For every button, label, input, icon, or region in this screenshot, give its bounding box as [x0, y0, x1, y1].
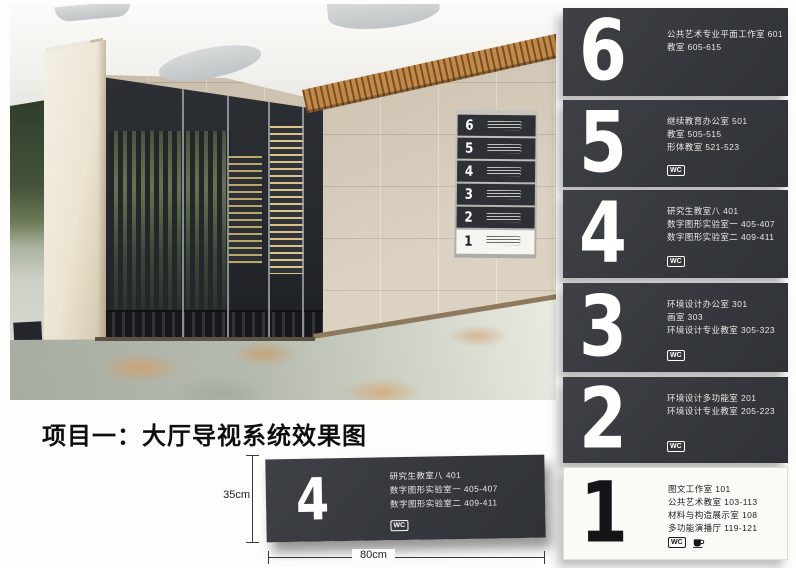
height-dimension-label: 35cm [212, 489, 250, 501]
room-line: 数字图形实验室二 409-411 [390, 495, 498, 511]
room-line: 教室 505-515 [667, 128, 747, 141]
directory-panel-4: 4 [457, 161, 535, 183]
floor-number: 4 [295, 470, 329, 529]
floor-number: 4 [579, 190, 627, 274]
floor-number: 5 [579, 100, 627, 184]
room-line: 研究生教室八 401 [667, 205, 775, 218]
floor-number: 4 [465, 163, 473, 179]
room-list: 研究生教室八 401 数字图形实验室一 405-407 数字图形实验室二 409… [667, 205, 775, 244]
lobby-photo: 6 5 4 3 2 1 [10, 4, 556, 400]
room-line: 继续教育办公室 501 [667, 115, 747, 128]
gate-frame-strip [302, 76, 304, 342]
detail-sign-4: 4 研究生教室八 401 数字图形实验室一 405-407 数字图形实验室二 4… [265, 455, 545, 543]
room-line: 图文工作室 101 [668, 483, 758, 496]
floor-sign-1: 1 图文工作室 101 公共艺术教室 103-113 材料与构造展示室 108 … [563, 467, 788, 560]
gate-frame-strip [268, 76, 270, 342]
room-list: 环境设计多功能室 201 环境设计专业教室 205-223 [667, 392, 775, 418]
floor-number: 3 [579, 284, 627, 368]
room-line: 形体教室 521-523 [667, 141, 747, 154]
mini-sign-lines [488, 121, 522, 130]
gate-frame-strip [182, 76, 184, 342]
room-line: 公共艺术教室 103-113 [668, 496, 758, 509]
page-title: 项目一：大厅导视系统效果图 [42, 416, 367, 451]
floor-number: 1 [580, 470, 628, 554]
room-line: 多功能演播厅 119-121 [668, 522, 758, 535]
wc-icon: WC [667, 165, 685, 176]
directory-panel-2: 2 [457, 207, 535, 229]
coffee-cup-icon [692, 537, 705, 548]
floor-sign-5: 5 继续教育办公室 501 教室 505-515 形体教室 521-523 WC [563, 100, 788, 187]
floor-sign-3: 3 环境设计办公室 301 画室 303 环境设计专业教室 305-323 WC [563, 283, 788, 372]
mini-sign-lines [486, 236, 520, 245]
mini-sign-lines [487, 190, 521, 199]
floor-number: 6 [579, 8, 627, 92]
floor-sign-4: 4 研究生教室八 401 数字图形实验室一 405-407 数字图形实验室二 4… [563, 190, 788, 278]
height-dimension-line [252, 455, 253, 543]
directory-panel-1: 1 [456, 230, 534, 255]
room-line: 材料与构造展示室 108 [668, 509, 758, 522]
room-list: 公共艺术专业平面工作室 601 教室 605-615 [667, 28, 783, 54]
mini-sign-lines [487, 213, 521, 222]
wc-icon: WC [390, 520, 408, 531]
mini-sign-lines [487, 167, 521, 176]
floor-number: 3 [465, 186, 473, 202]
width-dimension-line [268, 557, 545, 558]
directory-panel-6: 6 [458, 115, 536, 137]
gate-louver-window [270, 126, 304, 274]
room-line: 环境设计办公室 301 [667, 298, 775, 311]
room-list: 环境设计办公室 301 画室 303 环境设计专业教室 305-323 [667, 298, 775, 337]
gate-balusters [109, 131, 231, 313]
gate-base-shadow [95, 337, 315, 341]
floor-number: 6 [465, 117, 473, 133]
room-list: 图文工作室 101 公共艺术教室 103-113 材料与构造展示室 108 多功… [668, 483, 758, 535]
gate-frame-strip [227, 76, 229, 342]
room-list: 继续教育办公室 501 教室 505-515 形体教室 521-523 [667, 115, 747, 154]
floor-number: 5 [465, 140, 473, 156]
room-line: 教室 605-615 [667, 41, 783, 54]
floor-number: 1 [464, 234, 472, 250]
entrance-gates [95, 76, 323, 342]
room-line: 公共艺术专业平面工作室 601 [667, 28, 783, 41]
directory-panel-5: 5 [457, 138, 535, 160]
room-line: 环境设计专业教室 305-323 [667, 324, 775, 337]
gate-louver-window [228, 156, 262, 264]
room-line: 画室 303 [667, 311, 775, 324]
floor-sign-6: 6 公共艺术专业平面工作室 601 教室 605-615 [563, 8, 788, 96]
wall-directory-sign: 6 5 4 3 2 1 [454, 110, 538, 259]
wc-icon: WC [667, 441, 685, 452]
directory-panel-3: 3 [457, 184, 535, 206]
wc-icon: WC [667, 350, 685, 361]
wc-icon: WC [667, 256, 685, 267]
room-line: 环境设计多功能室 201 [667, 392, 775, 405]
entrance-column [44, 40, 106, 342]
mini-sign-lines [487, 144, 521, 153]
floor-number: 2 [579, 376, 627, 460]
room-line: 数字图形实验室二 409-411 [667, 231, 775, 244]
room-line: 数字图形实验室一 405-407 [667, 218, 775, 231]
floor-number: 2 [464, 209, 472, 225]
floor-sign-2: 2 环境设计多功能室 201 环境设计专业教室 205-223 WC [563, 377, 788, 463]
room-line: 环境设计专业教室 205-223 [667, 405, 775, 418]
wc-icon: WC [668, 537, 686, 548]
width-dimension-label: 80cm [352, 549, 395, 561]
page: 6 5 4 3 2 1 项目一 [0, 0, 796, 568]
room-list: 研究生教室八 401 数字图形实验室一 405-407 数字图形实验室二 409… [389, 467, 498, 511]
